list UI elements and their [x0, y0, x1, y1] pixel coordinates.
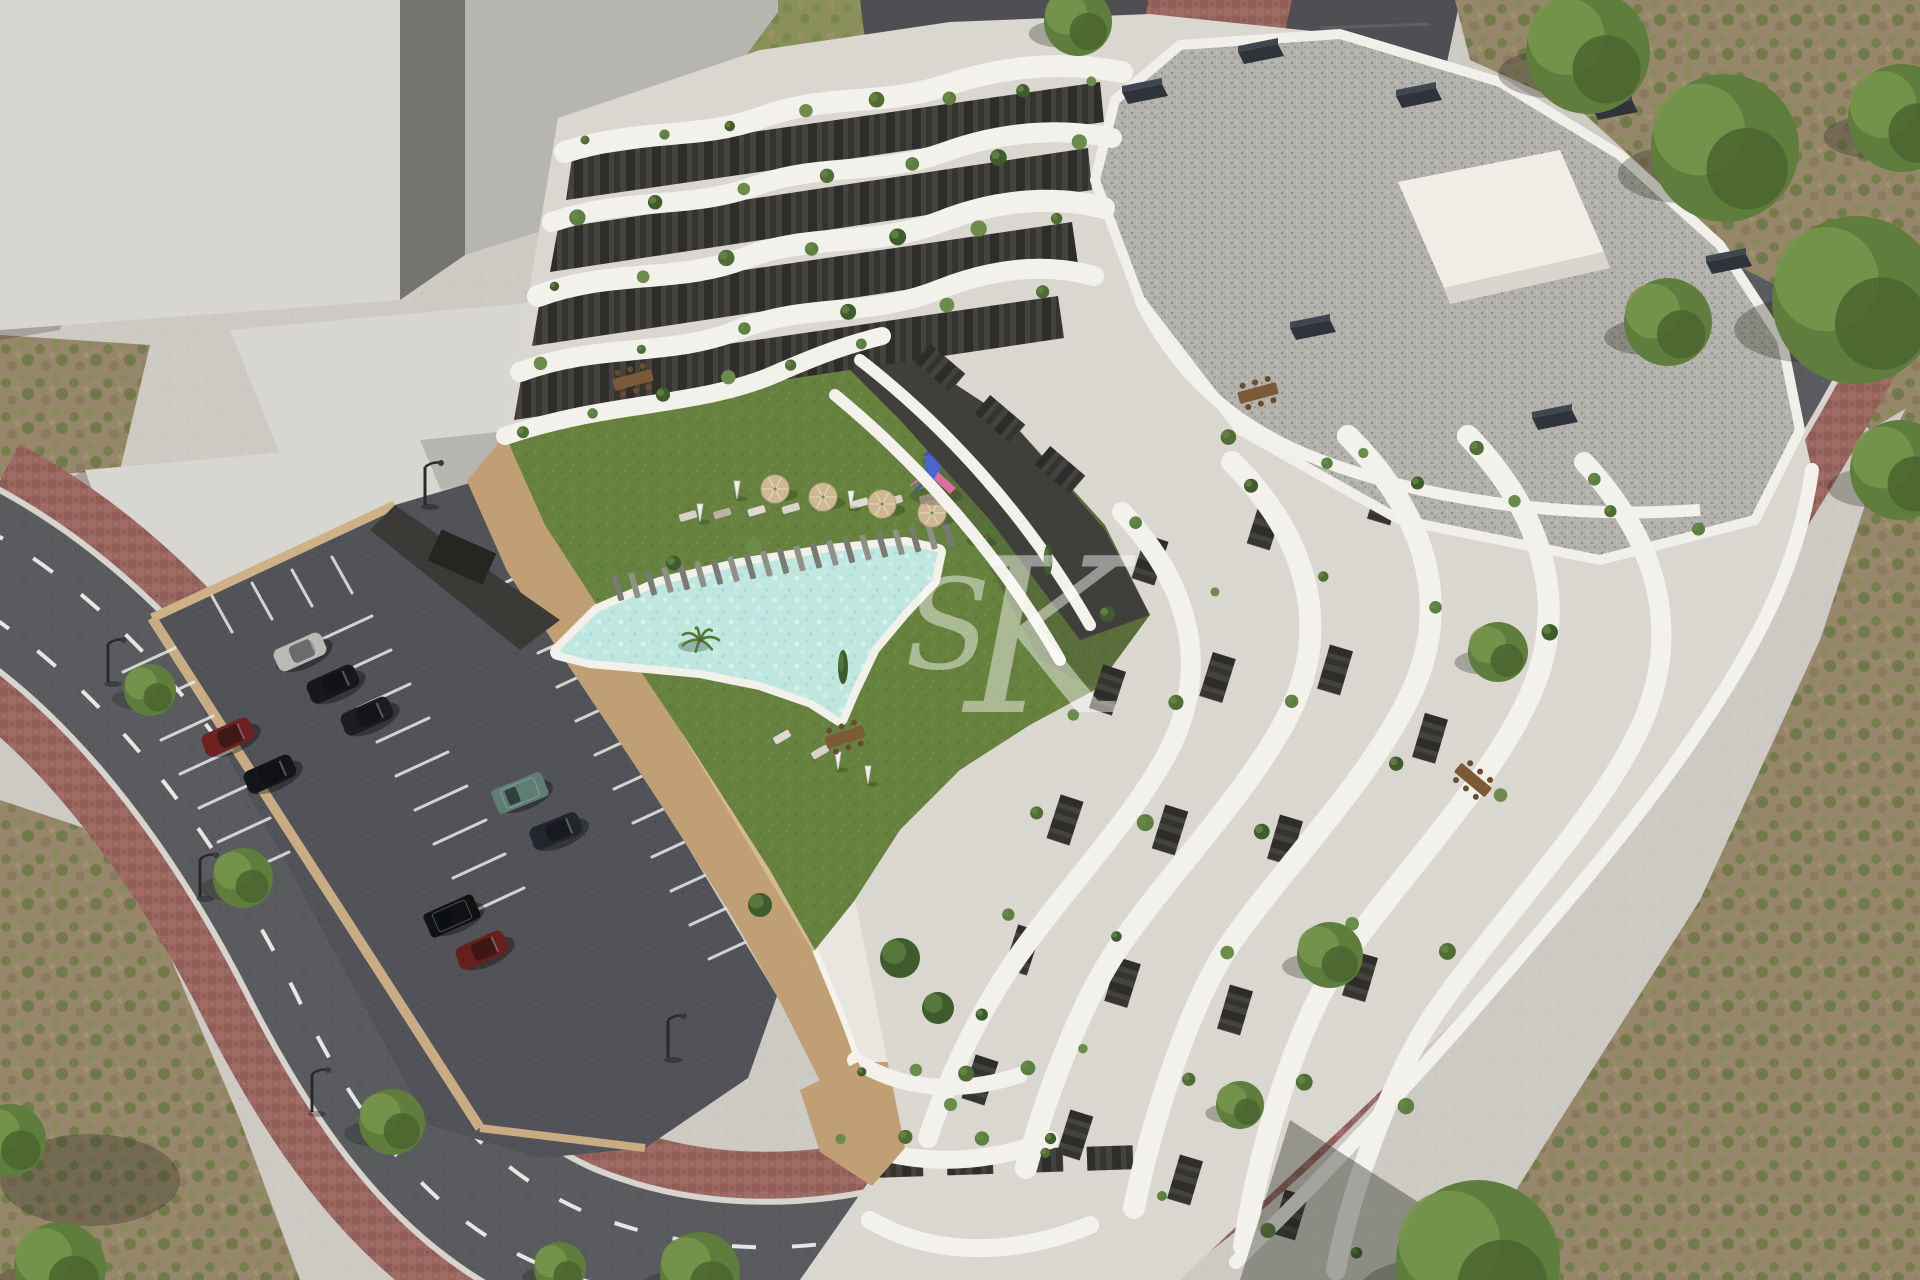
bush: [838, 650, 848, 684]
terrace-plant: [569, 209, 585, 225]
watermark-letter-k: K: [961, 512, 1137, 763]
terrace-plant: [1692, 522, 1705, 535]
terrace-plant: [656, 388, 670, 402]
terrace-plant: [595, 565, 604, 574]
terrace-plant: [944, 1098, 957, 1111]
terrace-plant: [721, 370, 735, 384]
terrace-plant: [898, 1130, 912, 1144]
terrace-plant: [1508, 495, 1520, 507]
terrace-plant: [1358, 448, 1368, 458]
terrace-plant: [1168, 695, 1183, 710]
terrace-plant: [1429, 601, 1442, 614]
terrace-plant: [1078, 1044, 1088, 1054]
terrace-plant: [581, 136, 590, 145]
terrace-plant: [1411, 477, 1424, 490]
terrace-plant: [648, 195, 662, 209]
terrace-plant: [745, 538, 762, 555]
terrace-plant: [958, 1066, 974, 1082]
terrace-plant: [725, 121, 735, 131]
terrace-plant: [1285, 695, 1298, 708]
terrace-plant: [1389, 757, 1403, 771]
terrace-plant: [637, 270, 650, 283]
terrace-plant: [517, 426, 529, 438]
terrace-plant: [534, 357, 547, 370]
terrace-plant: [1221, 429, 1237, 445]
terrace-plant: [1002, 908, 1014, 920]
terrace-plant: [666, 556, 681, 571]
terrace-plant: [1398, 1098, 1414, 1114]
scene-svg: S K: [0, 0, 1920, 1280]
terrace-plant: [1439, 943, 1456, 960]
terrace-plant: [718, 250, 734, 266]
terrace-plant: [738, 183, 751, 196]
terrace-plant: [840, 304, 856, 320]
terrace-plant: [1040, 1148, 1050, 1158]
terrace-plant: [738, 322, 750, 334]
terrace-plant: [1182, 1073, 1195, 1086]
terrace-plant: [835, 1134, 845, 1144]
terrace-plant: [1129, 516, 1142, 529]
architectural-render-canvas: S K: [0, 0, 1920, 1280]
terrace-plant: [1157, 1191, 1167, 1201]
terrace-plant: [1072, 134, 1087, 149]
terrace-plant: [857, 1067, 866, 1076]
terrace-plant: [975, 1131, 989, 1145]
terrace-plant: [1321, 457, 1333, 469]
terrace-plant: [1021, 1061, 1036, 1076]
terrace-plant: [1318, 571, 1328, 581]
terrace-plant: [1016, 84, 1029, 97]
terrace-plant: [905, 157, 919, 171]
terrace-plant: [587, 408, 597, 418]
terrace-plant: [970, 220, 986, 236]
bush: [748, 893, 772, 917]
terrace-plant: [869, 92, 885, 108]
window-recess: [1087, 1145, 1134, 1171]
terrace-plant: [889, 228, 906, 245]
terrace-plant: [1086, 76, 1096, 86]
terrace-plant: [1045, 1133, 1056, 1144]
terrace-plant: [940, 298, 955, 313]
terrace-plant: [1494, 788, 1508, 802]
terrace-plant: [1051, 213, 1062, 224]
terrace-plant: [910, 1064, 922, 1076]
terrace-plant: [856, 339, 867, 350]
terrace-plant: [1111, 931, 1122, 942]
terrace-plant: [659, 129, 669, 139]
terrace-plant: [1036, 285, 1049, 298]
terrace-plant: [1244, 479, 1258, 493]
terrace-plant: [1030, 806, 1043, 819]
terrace-plant: [805, 242, 819, 256]
terrace-plant: [1542, 624, 1558, 640]
terrace-plant: [785, 360, 796, 371]
terrace-plant: [1296, 1074, 1313, 1091]
terrace-plant: [990, 149, 1007, 166]
terrace-plant: [1604, 505, 1616, 517]
terrace-plant: [1254, 824, 1270, 840]
terrace-plant: [1137, 814, 1154, 831]
bush: [922, 992, 954, 1024]
terrace-plant: [1588, 473, 1601, 486]
terrace-plant: [820, 169, 834, 183]
terrace-plant: [1469, 441, 1483, 455]
bush: [880, 938, 920, 978]
terrace-plant: [943, 92, 957, 106]
terrace-plant: [550, 282, 559, 291]
terrace-plant: [1220, 946, 1234, 960]
terrace-plant: [1210, 587, 1219, 596]
terrace-plant: [976, 1008, 988, 1020]
terrace-plant: [799, 104, 812, 117]
terrace-plant: [637, 345, 646, 354]
